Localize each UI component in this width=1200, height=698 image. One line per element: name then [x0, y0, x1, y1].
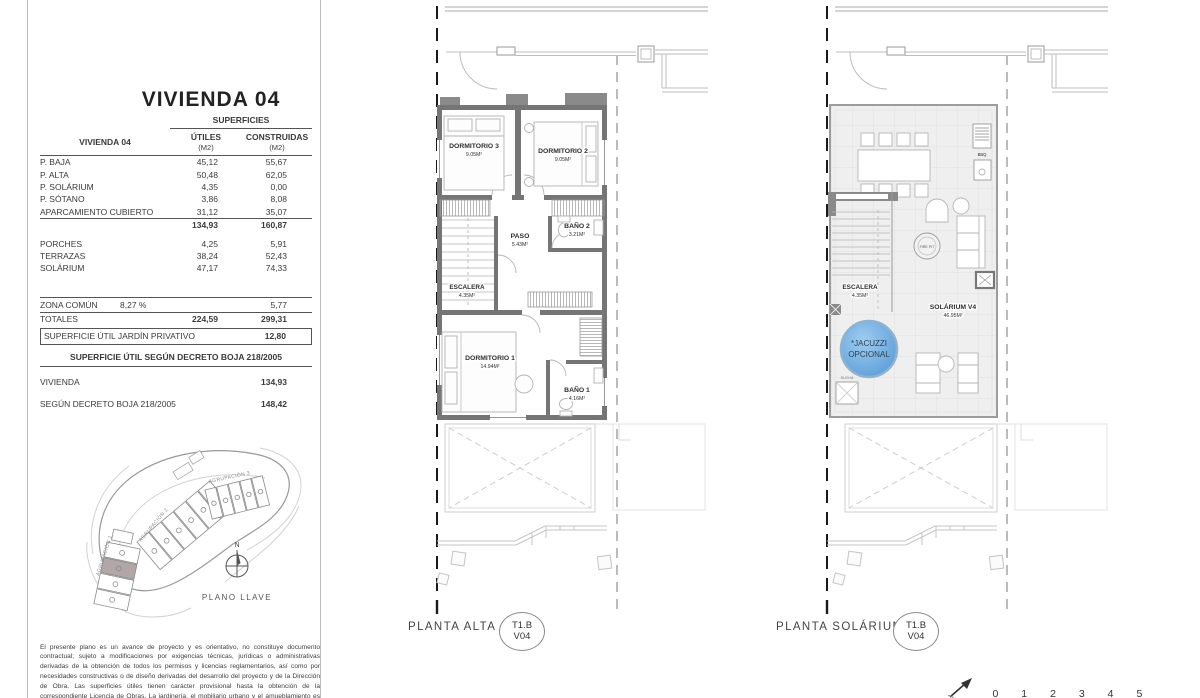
table-group-header-row: SUPERFICIES — [40, 115, 312, 129]
table-row: SOLÁRIUM 47,17 74,33 — [40, 262, 312, 274]
type-badge-solarium: T1.B V04 — [893, 612, 939, 651]
lower-patio — [445, 424, 705, 512]
entrance-terrace — [836, 46, 1108, 92]
table-row: PORCHES 4,25 5,91 — [40, 237, 312, 249]
plan-sheet: VIVIENDA 04 SUPERFICIES VIVIENDA 04 ÚTIL… — [0, 0, 1200, 698]
svg-text:N: N — [234, 542, 239, 549]
wall-box — [976, 272, 994, 288]
table-row: P. ALTA 50,48 62,05 — [40, 168, 312, 180]
jacuzzi: *JACUZZI OPCIONAL — [841, 321, 897, 377]
caption-planta-solarium: PLANTA SOLÁRIUM — [776, 621, 904, 633]
decreto-row: VIVIENDA 134,93 — [40, 376, 312, 389]
left-panel-border-right — [320, 0, 321, 698]
caption-planta-alta: PLANTA ALTA — [408, 621, 496, 633]
entrance-terrace — [446, 46, 708, 92]
firepit-label: FIRE PIT — [920, 245, 936, 249]
legal-disclaimer: El presente plano es un avance de proyec… — [40, 643, 320, 698]
lower-patio — [845, 424, 1107, 512]
table-row: P. SOLÁRIUM 4,35 0,00 — [40, 181, 312, 193]
svg-text:BAÑO 2: BAÑO 2 — [564, 221, 590, 230]
svg-text:14.94M²: 14.94M² — [480, 364, 499, 370]
table-row: P. BAJA 45,12 55,67 — [40, 156, 312, 168]
zona-comun-row: ZONA COMÚN 8,27 % 5,77 — [40, 297, 312, 313]
left-panel-border-left — [27, 0, 28, 698]
svg-text:DORMITORIO 2: DORMITORIO 2 — [538, 148, 588, 155]
svg-text:9.05M²: 9.05M² — [466, 152, 482, 158]
table-row: TERRAZAS 38,24 52,43 — [40, 250, 312, 262]
svg-text:ESCALERA: ESCALERA — [842, 284, 878, 291]
svg-text:5.43M²: 5.43M² — [512, 242, 528, 248]
svg-text:4.35M²: 4.35M² — [852, 293, 868, 299]
pergola — [827, 526, 1004, 585]
floor-plan-alta: DORMITORIO 3 9.05M² DORMITORIO 2 9.05M² … — [400, 0, 710, 660]
svg-text:46.95M²: 46.95M² — [943, 313, 962, 319]
surfaces-table: SUPERFICIES VIVIENDA 04 ÚTILES (M2) CONS… — [40, 115, 312, 411]
svg-text:DORMITORIO 3: DORMITORIO 3 — [449, 143, 499, 150]
subtotal-row: 134,93 160,87 — [40, 218, 312, 231]
roof-edge-lines — [445, 7, 708, 11]
svg-text:3.21M²: 3.21M² — [569, 232, 585, 238]
jacuzzi-label-line1: *JACUZZI — [851, 339, 887, 348]
north-arrow-icon — [948, 676, 982, 698]
bbq-label: BBQ — [978, 152, 988, 157]
superficies-header: SUPERFICIES — [170, 115, 312, 129]
ducha-label: DUCHA — [841, 376, 854, 380]
roof-edge-lines — [835, 7, 1108, 11]
row-header: VIVIENDA 04 — [40, 132, 170, 152]
type-badge-alta: T1.B V04 — [499, 612, 545, 651]
svg-text:SOLÁRIUM V4: SOLÁRIUM V4 — [930, 302, 977, 311]
jardin-privativo-row: SUPERFICIE ÚTIL JARDÍN PRIVATIVO 12,80 — [40, 328, 312, 345]
decreto-row: SEGÚN DECRETO BOJA 218/2005 148,42 — [40, 398, 312, 411]
floor-plan-solarium: BBQ — [790, 0, 1110, 660]
scale-bar: 0 1 2 3 4 5 — [981, 688, 1154, 698]
col-header-construidas: CONSTRUIDAS (M2) — [242, 132, 312, 152]
site-plan-caption: PLANO LLAVE — [202, 593, 272, 602]
jacuzzi-label-line2: OPCIONAL — [848, 350, 890, 359]
pergola — [437, 526, 612, 585]
table-column-header-row: VIVIENDA 04 ÚTILES (M2) CONSTRUIDAS (M2) — [40, 129, 312, 156]
svg-text:9.05M²: 9.05M² — [555, 157, 571, 163]
col-header-utiles: ÚTILES (M2) — [170, 132, 242, 152]
table-row: APARCAMIENTO CUBIERTO 31,12 35,07 — [40, 206, 312, 218]
svg-text:BAÑO 1: BAÑO 1 — [564, 385, 590, 394]
svg-text:DORMITORIO 1: DORMITORIO 1 — [465, 355, 515, 362]
furniture — [442, 116, 603, 416]
table-row: P. SÓTANO 3,86 8,08 — [40, 193, 312, 205]
site-plan: AGRUPACIÓN 1 AGRUPACIÓN 2 AGRUPACIÓN 3 N… — [85, 446, 313, 618]
totales-row: TOTALES 224,59 299,31 — [40, 313, 312, 325]
svg-text:4.35M²: 4.35M² — [459, 293, 475, 299]
decreto-header: SUPERFICIE ÚTIL SEGÚN DECRETO BOJA 218/2… — [40, 352, 312, 367]
page-title: VIVIENDA 04 — [105, 88, 317, 112]
svg-text:4.16M²: 4.16M² — [569, 396, 585, 402]
svg-text:ESCALERA: ESCALERA — [449, 284, 485, 291]
svg-text:PASO: PASO — [511, 233, 530, 240]
